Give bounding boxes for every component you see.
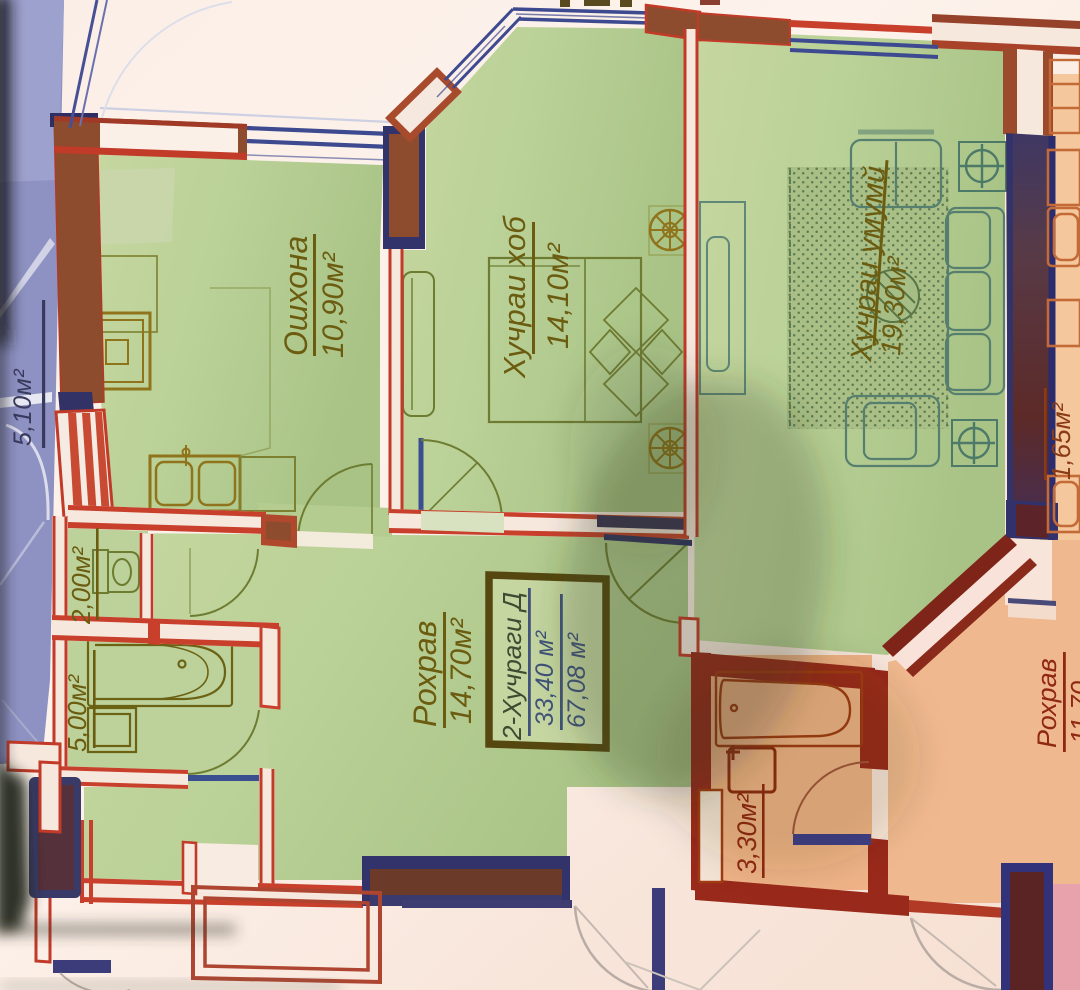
svg-text:1,65м²: 1,65м² [1046,402,1076,480]
svg-text:5,10м²: 5,10м² [9,368,37,446]
svg-text:2,00м²: 2,00м² [66,546,96,625]
svg-text:Рохрав: Рохрав [1032,658,1062,748]
svg-text:Хучраи хоб: Хучраи хоб [497,215,532,379]
svg-text:Ошхона: Ошхона [278,236,314,356]
svg-text:5,00м²: 5,00м² [62,674,92,752]
svg-text:14,70м²: 14,70м² [445,617,478,724]
svg-text:11,70: 11,70 [1065,680,1080,744]
svg-text:14,10м²: 14,10м² [542,242,575,349]
svg-text:10,90м²: 10,90м² [317,251,350,358]
svg-text:Рохрав: Рохрав [407,621,443,727]
svg-text:2-Хучраги Д: 2-Хучраги Д [497,592,527,741]
svg-text:33,40 м²: 33,40 м² [531,629,559,726]
